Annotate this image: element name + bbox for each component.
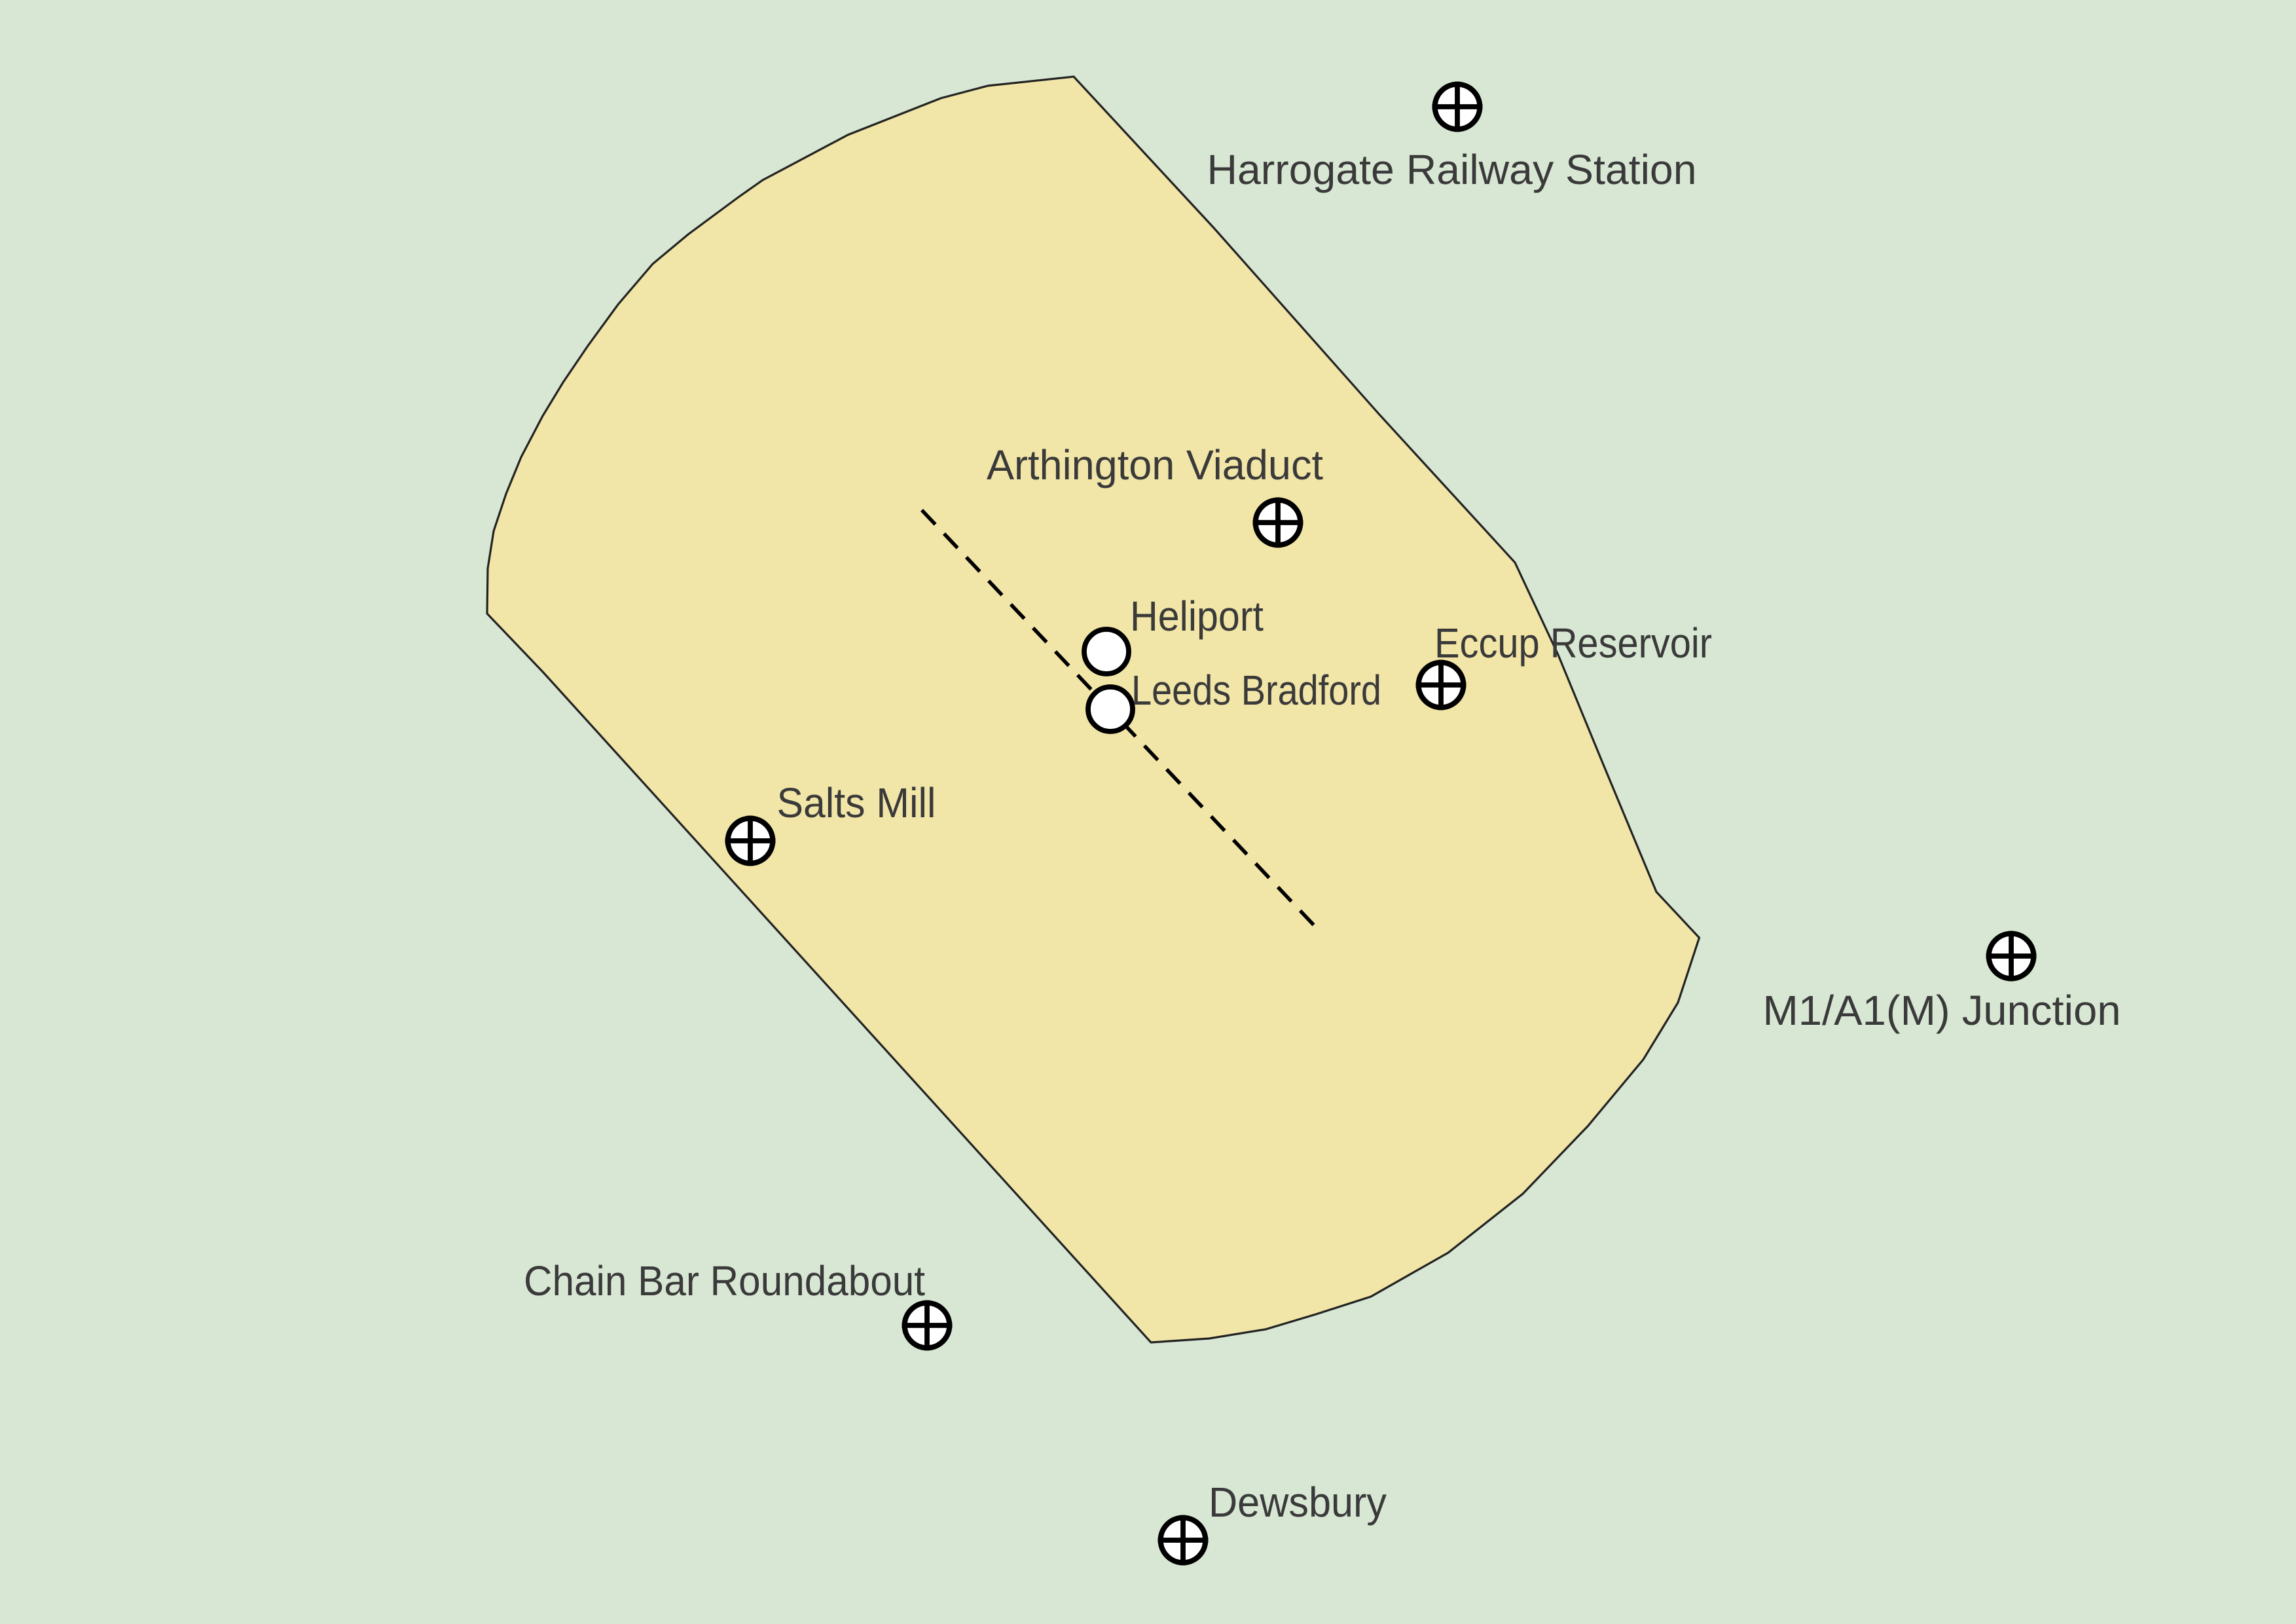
svg-text:Chain Bar Roundabout: Chain Bar Roundabout [524, 1257, 925, 1304]
svg-text:Dewsbury: Dewsbury [1209, 1479, 1387, 1526]
svg-text:Leeds Bradford: Leeds Bradford [1131, 667, 1381, 714]
svg-text:Salts Mill: Salts Mill [777, 779, 936, 826]
svg-text:Arthington Viaduct: Arthington Viaduct [987, 441, 1323, 489]
svg-text:Harrogate Railway Station: Harrogate Railway Station [1207, 146, 1697, 193]
svg-text:M1/A1(M) Junction: M1/A1(M) Junction [1763, 987, 2121, 1034]
svg-text:Eccup Reservoir: Eccup Reservoir [1434, 619, 1712, 667]
svg-text:Heliport: Heliport [1130, 593, 1264, 640]
